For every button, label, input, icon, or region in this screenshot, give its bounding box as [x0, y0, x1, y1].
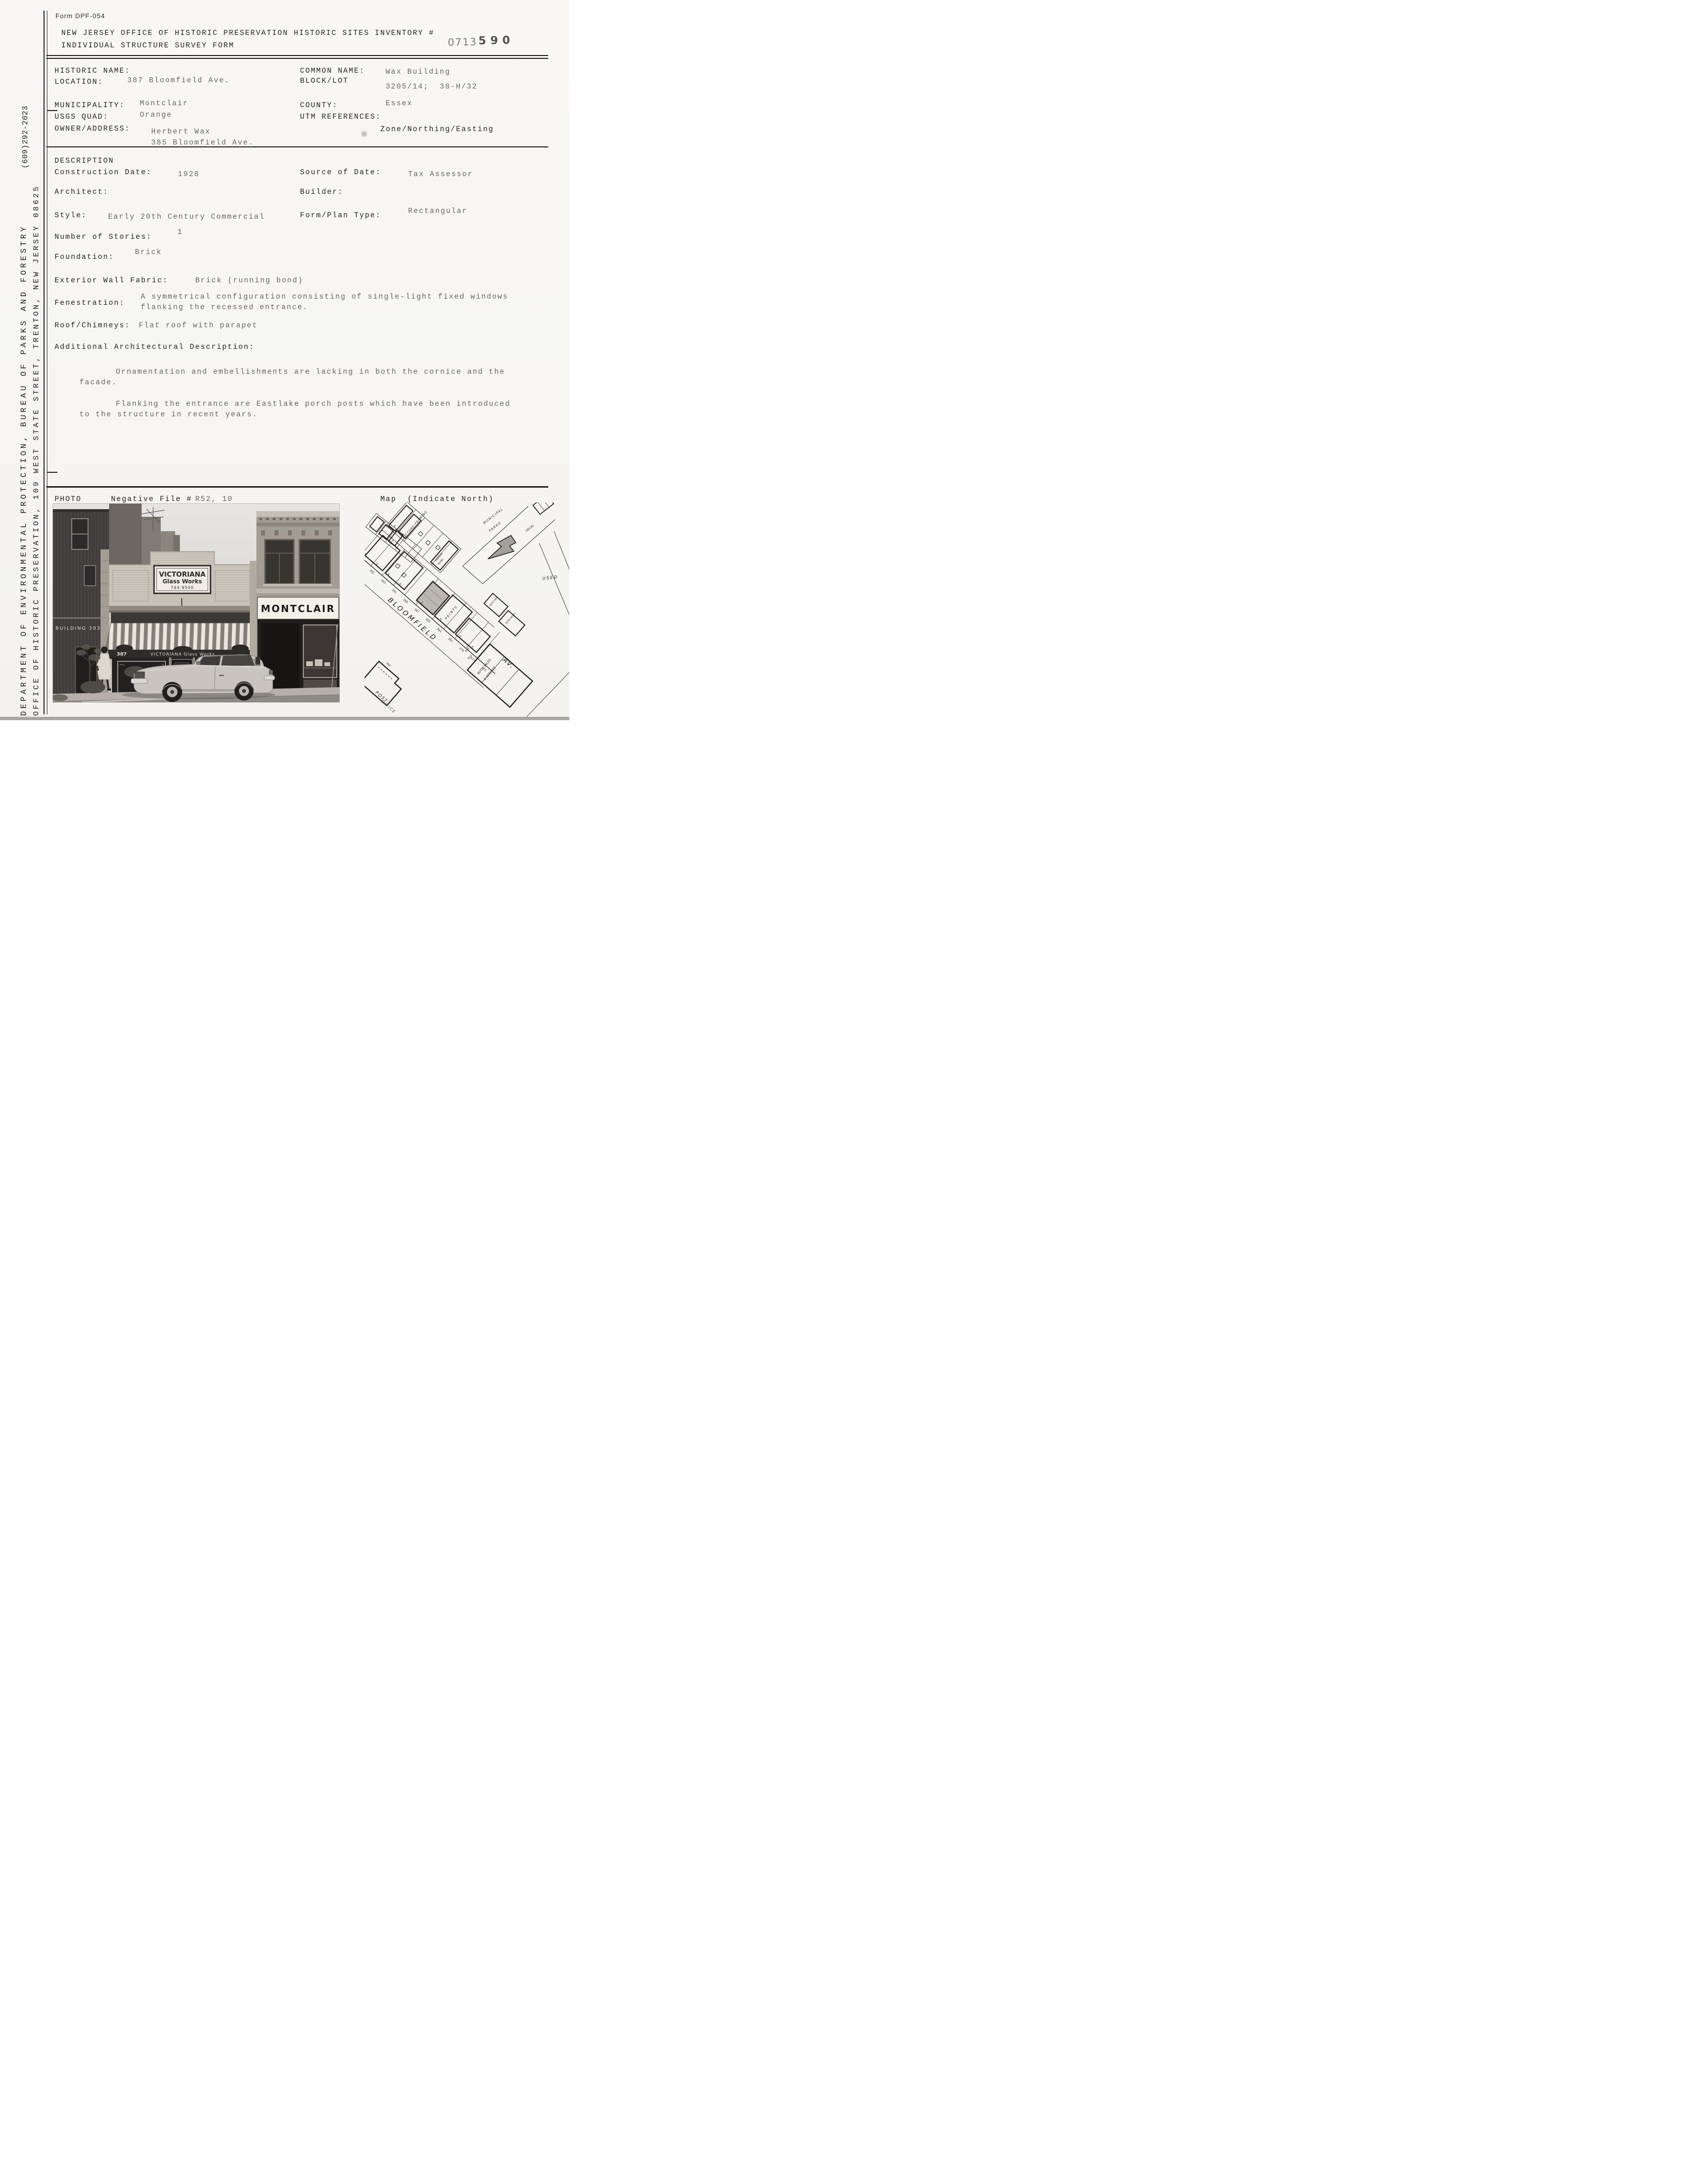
negative-file-value: R52, 10 [195, 495, 233, 503]
parapet-sign-name: VICTORIANA [159, 571, 205, 579]
left-building-window-2 [84, 566, 96, 586]
form-plan-label: Form/Plan Type: [300, 211, 381, 220]
map-topleft-strip [366, 513, 421, 562]
inventory-number-stamp: 0713 [448, 36, 477, 48]
photo-label: PHOTO [55, 495, 82, 503]
source-of-date-label: Source of Date: [300, 168, 381, 177]
header-rule-top [46, 55, 548, 56]
municipality-label: MUNICIPALITY: [55, 101, 125, 110]
wall-fabric-label: Exterior Wall Fabric: [55, 276, 168, 285]
building-393-sign: BUILDING 393 [55, 626, 101, 631]
map-sanborn: PICTURE FRAMING HARDW W.HO PAINTS SS S [365, 502, 569, 720]
inventory-number-handwritten: 590 [478, 34, 514, 47]
montclair-sign-text: MONTCLAIR [261, 603, 335, 614]
map-number-18cb: 18(CB) [525, 524, 535, 533]
stories-label: Number of Stories: [55, 233, 152, 241]
map-upper-right-streets [463, 506, 569, 720]
section-rule-2 [46, 486, 548, 488]
svg-text:383: 383 [436, 627, 442, 634]
svg-text:395: 395 [369, 569, 375, 575]
common-name-label: COMMON NAME: [300, 67, 365, 75]
parapet-sign: VICTORIANA Glass Works 744·9500 [154, 566, 211, 593]
additional-para2-line1: Flanking the entrance are Eastlake porch… [116, 400, 510, 408]
architect-label: Architect: [55, 188, 109, 196]
construction-date-label: Construction Date: [55, 168, 152, 177]
left-border-rule-inner [47, 11, 48, 714]
parapet-sign-phone: 744·9500 [171, 586, 194, 590]
svg-text:385: 385 [425, 617, 431, 624]
roof-value: Flat roof with parapet [139, 321, 258, 330]
additional-para1-line1: Ornamentation and embellishments are lac… [116, 368, 505, 376]
municipality-value: Montclair [140, 99, 189, 108]
county-value: Essex [386, 99, 413, 108]
usgs-quad-label: USGS QUAD: [55, 112, 109, 121]
builder-label: Builder: [300, 188, 343, 196]
map-auto-blocks: AUTO REP AUTO BODY [481, 593, 527, 636]
owner-value-line1: Herbert Wax [151, 127, 211, 136]
style-value: Early 20th Century Commercial [108, 212, 265, 221]
additional-para1-line2: facade. [79, 378, 117, 387]
montclair-sign: MONTCLAIR [257, 597, 339, 619]
form-title-line1: NEW JERSEY OFFICE OF HISTORIC PRESERVATI… [61, 29, 434, 37]
additional-para2-line2: to the structure in recent years. [79, 410, 258, 419]
right-display-window [303, 625, 337, 678]
map-municipal-label-2: PARKG [488, 521, 502, 533]
sidebar-office-line: OFFICE OF HISTORIC PRESERVATION, 109 WES… [32, 185, 41, 716]
block-lot-label: BLOCK/LOT [300, 77, 349, 85]
svg-text:389: 389 [402, 598, 409, 604]
map-auto-rep-label: AUTO REP [489, 596, 499, 607]
location-label: LOCATION: [55, 78, 103, 86]
scan-edge-strip [0, 717, 569, 720]
foundation-value: Brick [135, 248, 162, 256]
map-auto-body-label: AUTO BODY [505, 612, 517, 625]
style-label: Style: [55, 211, 87, 220]
fenestration-label: Fenestration: [55, 299, 125, 307]
sidebar-phone: (609)292-2023 [21, 106, 30, 168]
fenestration-value-line1: A symmetrical configuration consisting o… [141, 292, 509, 301]
block-lot-value: 3205/14; 38-H/32 [386, 82, 477, 91]
fenestration-value-line2: flanking the recessed entrance. [141, 303, 308, 312]
stamp-smudge [361, 130, 367, 138]
survey-form-page: (609)292-2023 DEPARTMENT OF ENVIRONMENTA… [0, 0, 569, 720]
wall-fabric-value: Brick (running bond) [195, 276, 303, 285]
form-plan-value: Rectangular [408, 207, 467, 215]
sidebar-department-line: DEPARTMENT OF ENVIRONMENTAL PROTECTION, … [19, 224, 28, 716]
map-post-label-2: OFFICE [380, 699, 397, 714]
location-value: 387 Bloomfield Ave. [127, 76, 230, 85]
map-main-block: PICTURE FRAMING HARDW W.HO PAINTS SS S [365, 502, 546, 688]
margin-tick-2 [47, 472, 57, 473]
owner-address-label: OWNER/ADDRESS: [55, 124, 130, 133]
svg-text:S: S [392, 524, 397, 529]
construction-date-value: 1928 [178, 170, 200, 178]
form-title-line2: INDIVIDUAL STRUCTURE SURVEY FORM [61, 41, 234, 50]
stories-value: 1 [177, 228, 183, 236]
left-border-rule-outer [44, 11, 44, 714]
svg-text:393: 393 [380, 579, 386, 585]
svg-text:387: 387 [413, 608, 420, 614]
utm-references-label: UTM REFERENCES: [300, 112, 381, 121]
common-name-value: Wax Building [386, 67, 451, 76]
source-of-date-value: Tax Assessor [408, 170, 473, 178]
description-section-title: DESCRIPTION [55, 156, 114, 165]
svg-text:381: 381 [447, 637, 453, 643]
margin-tick-1 [47, 110, 57, 111]
section-rule-1 [46, 146, 548, 147]
map-topright-parcel [533, 502, 554, 514]
owner-value-line2: 385 Bloomfield Ave. [151, 138, 254, 147]
header-rule-bottom [46, 58, 548, 59]
roof-label: Roof/Chimneys: [55, 321, 130, 330]
county-label: COUNTY: [300, 101, 338, 110]
negative-file-label: Negative File # [111, 495, 192, 503]
additional-description-label: Additional Architectural Description: [55, 343, 255, 351]
parapet-sign-sub: Glass Works [163, 578, 202, 585]
photo-storefront: BUILDING 393 VICTORIANA Glass Works 744·… [53, 503, 340, 702]
usgs-quad-value: Orange [140, 111, 172, 119]
foundation-label: Foundation: [55, 253, 114, 261]
svg-text:379: 379 [458, 646, 465, 653]
awning-street-number: 387 [117, 652, 127, 657]
map-paints-label: PAINTS [444, 605, 458, 621]
map-picture-framing-label: PICTURE FRAMING [402, 510, 428, 539]
striped-awning: 387 VICTORIANA Glass Works [105, 623, 261, 659]
utm-zone-value: Zone/Northing/Easting [380, 125, 494, 134]
svg-text:391: 391 [391, 588, 397, 594]
historic-name-label: HISTORIC NAME: [55, 67, 130, 75]
form-number: Form DPF-054 [55, 12, 105, 20]
map-used-label: USED [542, 575, 558, 581]
